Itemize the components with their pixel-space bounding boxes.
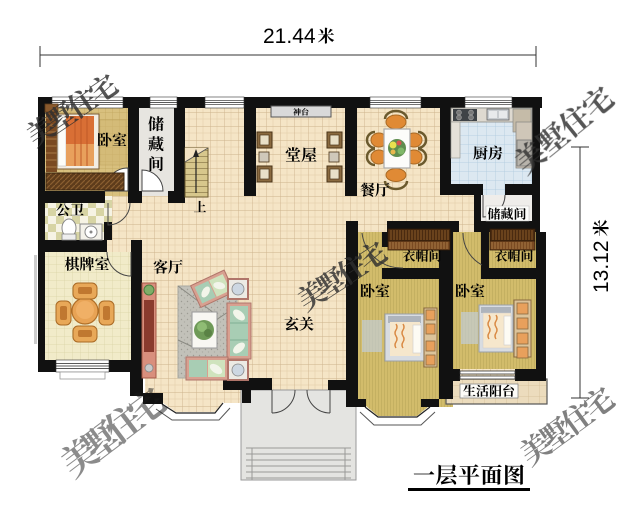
svg-text:21.44: 21.44: [263, 25, 316, 48]
svg-text:13.12: 13.12: [590, 240, 613, 293]
